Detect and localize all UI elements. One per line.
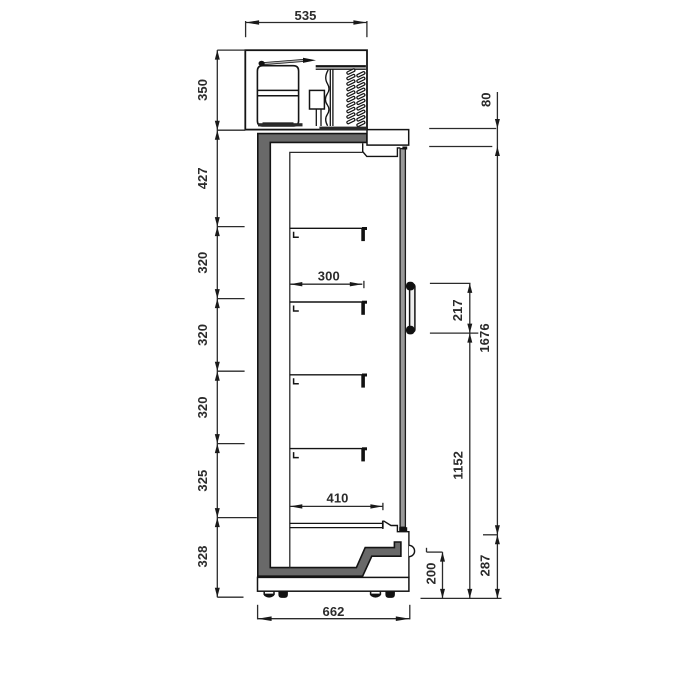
svg-text:350: 350 <box>195 79 210 101</box>
svg-text:320: 320 <box>195 252 210 274</box>
svg-text:80: 80 <box>478 92 493 107</box>
svg-text:662: 662 <box>323 604 345 619</box>
svg-text:287: 287 <box>478 555 493 577</box>
svg-text:320: 320 <box>195 396 210 418</box>
svg-text:427: 427 <box>195 167 210 189</box>
svg-text:217: 217 <box>450 299 465 321</box>
svg-text:1676: 1676 <box>477 323 492 352</box>
svg-text:328: 328 <box>195 546 210 568</box>
svg-text:535: 535 <box>295 8 317 23</box>
svg-text:200: 200 <box>423 563 438 585</box>
svg-text:320: 320 <box>195 324 210 346</box>
svg-text:1152: 1152 <box>450 451 465 480</box>
svg-text:300: 300 <box>318 269 340 284</box>
svg-text:325: 325 <box>195 470 210 492</box>
svg-text:410: 410 <box>327 491 349 506</box>
